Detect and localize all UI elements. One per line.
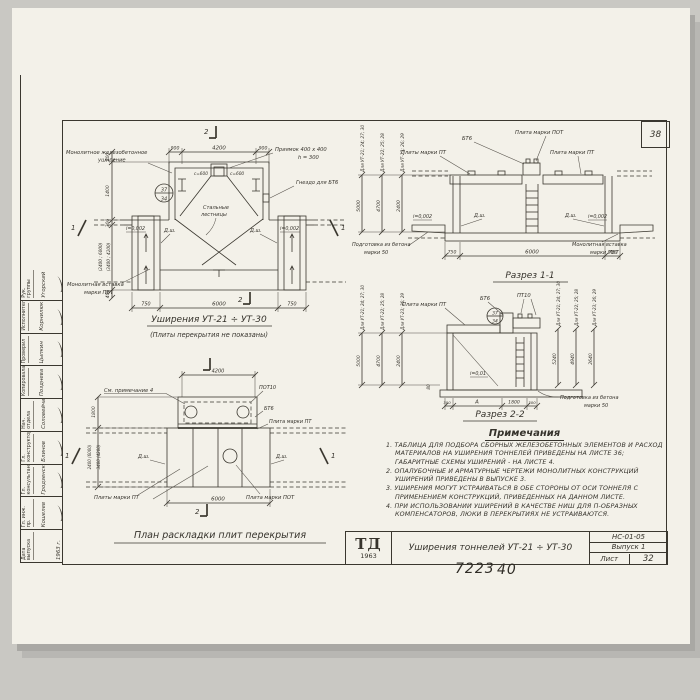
stamp-row: Рук. группы Угорский: [21, 268, 63, 301]
svg-text:4940: 4940: [570, 353, 576, 365]
issue-number: Выпуск 1: [590, 543, 667, 554]
logo-year: 1963: [360, 553, 377, 560]
svg-text:900: 900: [171, 146, 180, 152]
svg-text:1800: 1800: [508, 400, 520, 406]
hand-number-right: 40: [497, 562, 517, 578]
drawing-title: Уширения тоннелей УТ-21 ÷ УТ-30: [392, 532, 589, 564]
section-1-1: Для УТ-21; 24; 27; 30 Для УТ-22; 25; 28 …: [350, 118, 665, 290]
slab-band-plan: [86, 428, 348, 487]
hand-number-left: 7223: [455, 561, 495, 577]
view-title: Уширения УТ-21 ÷ УТ-30 (Плиты перекрытия…: [147, 315, 272, 339]
view-widening-elevation: 2 900 4200 900 с=600 с=600: [64, 122, 358, 348]
svg-text:Для УТ-21; 24; 27; 30: Для УТ-21; 24; 27; 30: [360, 285, 365, 331]
svg-text:h = 300: h = 300: [298, 155, 320, 161]
svg-text:1400: 1400: [105, 185, 111, 197]
dim-bottom: 300 А 1800 300: [442, 398, 540, 410]
svg-text:34: 34: [492, 319, 498, 325]
note-item: 1. Таблица для подбора сборных железобет…: [386, 442, 663, 467]
stamp-row: Нач. отдела Соловейчик: [21, 399, 63, 432]
callouts-bottom: Плиты марки ПТ Плита марки ПОТ: [94, 465, 295, 501]
svg-text:300: 300: [105, 219, 111, 228]
section-title: Разрез 2-2: [463, 410, 537, 421]
stamp-row: Проверил Цыпкин: [21, 334, 63, 367]
svg-text:750: 750: [287, 302, 296, 308]
svg-text:1: 1: [341, 224, 345, 232]
svg-text:400: 400: [105, 290, 111, 299]
stamp-row: Копировала Позднева: [21, 366, 63, 399]
svg-text:1: 1: [331, 452, 335, 460]
signature-scribble: [53, 372, 63, 391]
svg-text:Д.ш.: Д.ш.: [163, 228, 176, 234]
svg-text:(3400 ; 4200): (3400 ; 4200): [106, 242, 111, 271]
height-dims-left: Для УТ-21; 24; 27; 30 Для УТ-22; 25; 28 …: [356, 125, 450, 235]
section-marker-1-left: 1: [65, 448, 80, 464]
callout-socket: Гнездо для БТ6: [270, 180, 339, 198]
svg-text:2400: 2400: [396, 200, 402, 212]
svg-text:Д.ш.: Д.ш.: [137, 454, 150, 460]
svg-text:4200: 4200: [212, 369, 225, 375]
svg-text:марки 50: марки 50: [364, 250, 388, 256]
note-item: 4. При использовании уширений в качестве…: [386, 503, 663, 520]
svg-text:750: 750: [448, 250, 457, 256]
svg-text:ПОТ10: ПОТ10: [259, 385, 276, 391]
logo-text: ТД: [355, 537, 382, 552]
svg-text:3400 (4200): 3400 (4200): [96, 444, 101, 469]
section-marker-1-right: 1: [330, 220, 345, 236]
side-stamp: Рук. группы Угорский Исполнитель Корнилю…: [20, 268, 62, 563]
svg-text:Монолитная вставка: Монолитная вставка: [67, 282, 124, 288]
logo-td: ТД 1963: [346, 532, 392, 564]
svg-text:с=600: с=600: [194, 171, 208, 177]
callout-insert: Монолитная вставка марки МВТ: [572, 234, 627, 256]
svg-text:См. примечание 4: См. примечание 4: [104, 388, 153, 394]
dim-bottom: 750 6000 750: [129, 292, 309, 312]
svg-text:750: 750: [609, 250, 618, 256]
note-item: 2. Опалубочные и арматурные чертежи моно…: [386, 468, 663, 485]
document-code: НС-01-05: [590, 532, 667, 543]
svg-text:(2400 ; 6000): (2400 ; 6000): [98, 242, 103, 271]
notes-block: Примечания 1. Таблица для подбора сборны…: [386, 428, 663, 521]
svg-text:2400: 2400: [396, 355, 402, 367]
svg-text:лестницы: лестницы: [200, 212, 227, 218]
plan-slab-layout: 4200 См. примечание 4 ПОТ10 БТ6 Плита ма…: [58, 352, 370, 557]
svg-text:300: 300: [443, 400, 451, 405]
svg-text:Для УТ-21; 24; 27; 30: Для УТ-21; 24; 27; 30: [360, 125, 366, 173]
svg-text:2: 2: [238, 296, 243, 304]
svg-text:4700: 4700: [376, 200, 382, 212]
section-marker-1-left: 1: [71, 220, 86, 236]
widening-plan: [178, 397, 257, 428]
signature-scribble: [53, 307, 63, 326]
svg-text:i=0,002: i=0,002: [413, 214, 432, 220]
svg-text:Для УТ-22; 25; 28: Для УТ-22; 25; 28: [380, 133, 386, 173]
section-2-2: Для УТ-21; 24; 27; 30 Для УТ-22; 25; 28 …: [350, 285, 665, 427]
title-block: ТД 1963 Уширения тоннелей УТ-21 ÷ УТ-30 …: [345, 531, 668, 565]
svg-text:Для УТ-23; 26; 29: Для УТ-23; 26; 29: [400, 293, 405, 331]
svg-text:Плита марки ПТ: Плита марки ПТ: [269, 419, 312, 425]
svg-text:4200: 4200: [212, 146, 226, 152]
plan-title: План раскладки плит перекрытия: [114, 530, 326, 543]
svg-text:1800: 1800: [91, 406, 97, 418]
section-title: Разрез 1-1: [493, 271, 568, 282]
svg-text:Д.ш.: Д.ш.: [473, 213, 486, 219]
stamp-row: Дата выпуска 1963 г.: [21, 530, 63, 563]
stamp-row: Гл. конструктор Блинов: [21, 432, 63, 465]
svg-text:марки 50: марки 50: [584, 403, 608, 409]
stamp-row: Исполнитель Корнилюк: [21, 301, 63, 334]
joint-and-slope-labels: Д.ш. Д.ш. i=0,002 i=0,002: [413, 213, 607, 226]
svg-text:Плиты марки ПТ: Плиты марки ПТ: [94, 495, 140, 501]
svg-text:Для УТ-22; 25; 28: Для УТ-22; 25; 28: [380, 293, 385, 331]
section-marker-2-top: 2: [204, 126, 216, 138]
svg-text:Д.ш.: Д.ш.: [249, 228, 262, 234]
svg-text:37: 37: [492, 311, 498, 317]
stamp-row: Гл. инж. пр. Кошелев: [21, 497, 63, 530]
svg-text:i=0,002: i=0,002: [588, 214, 607, 220]
signature-scribble: [53, 274, 63, 293]
svg-text:Уширения УТ-21 ÷ УТ-30: Уширения УТ-21 ÷ УТ-30: [151, 315, 267, 325]
signature-scribble: [53, 471, 63, 490]
svg-text:План раскладки плит перекрытия: План раскладки плит перекрытия: [134, 530, 306, 541]
svg-text:БТ6: БТ6: [264, 406, 274, 412]
sheet-number: 32: [629, 554, 668, 564]
svg-text:6000: 6000: [525, 250, 539, 256]
svg-text:Гнездо для БТ6: Гнездо для БТ6: [296, 180, 339, 186]
steel-ladders-lines: [175, 176, 263, 277]
section-marker-1-right: 1: [320, 448, 335, 464]
dim-top: 900 4200 900: [166, 146, 272, 165]
svg-text:БТ6: БТ6: [480, 296, 491, 302]
svg-text:900: 900: [259, 146, 268, 152]
svg-text:ПТ10: ПТ10: [517, 293, 531, 299]
signature-scribble: [53, 405, 63, 424]
svg-text:5240: 5240: [552, 353, 558, 365]
svg-text:Плита марки ПОТ: Плита марки ПОТ: [246, 495, 295, 501]
svg-text:80: 80: [426, 384, 431, 390]
svg-text:Для УТ-23; 26; 29: Для УТ-23; 26; 29: [592, 289, 597, 327]
svg-text:1: 1: [65, 452, 69, 460]
section-marker-2-bottom: 2: [238, 292, 250, 304]
svg-text:(Плиты перекрытия не показаны): (Плиты перекрытия не показаны): [150, 331, 268, 339]
svg-text:i=0,002: i=0,002: [280, 226, 299, 232]
sheet-row: Лист 32: [590, 553, 667, 564]
svg-text:Монолитная вставка: Монолитная вставка: [572, 242, 627, 248]
svg-text:Разрез 1-1: Разрез 1-1: [505, 271, 554, 281]
stamp-row: Гл. консультант Гродзенский: [21, 465, 63, 498]
signature-scribble: [53, 340, 63, 359]
svg-text:2: 2: [195, 508, 200, 516]
callout-steel-ladders: Стальные лестницы: [200, 205, 229, 235]
note-item: 3. Уширения могут устраиваться в обе сто…: [386, 485, 663, 502]
tunnel-cross-section: [408, 159, 655, 241]
joint-and-slope-labels: Д.ш. Д.ш. i=0,002 i=0,002: [126, 226, 300, 243]
svg-text:БТ6: БТ6: [462, 136, 473, 142]
svg-text:Приямок 400 x 400: Приямок 400 x 400: [275, 147, 327, 153]
sheet-label: Лист: [590, 555, 629, 563]
signature-scribble: [53, 504, 63, 523]
svg-text:i=0,002: i=0,002: [126, 226, 145, 232]
notes-title: Примечания: [386, 428, 663, 439]
svg-text:Плиты марки ПТ: Плиты марки ПТ: [401, 150, 447, 156]
svg-text:6000: 6000: [211, 497, 225, 503]
svg-text:37: 37: [161, 188, 168, 194]
svg-text:34: 34: [161, 197, 167, 203]
svg-text:Подготовка из бетона: Подготовка из бетона: [352, 242, 411, 248]
node-mark-circle: 37 34: [155, 184, 173, 203]
callouts: Плита марки ПТ БТ6 ПТ10 Подготовка из бе…: [402, 293, 619, 409]
svg-text:2400 (6000): 2400 (6000): [87, 444, 92, 469]
svg-text:1: 1: [71, 224, 75, 232]
svg-text:А: А: [474, 400, 479, 406]
svg-text:6000: 6000: [212, 302, 226, 308]
svg-text:Д.ш.: Д.ш.: [564, 213, 577, 219]
svg-text:Плита марки ПТ: Плита марки ПТ: [402, 302, 447, 308]
height-dims-right: Для УТ-21; 24; 27; 30 Для УТ-22; 25; 28 …: [552, 281, 597, 388]
signature-scribble: [53, 438, 63, 457]
callout-prep: Подготовка из бетона марки 50: [352, 232, 428, 256]
callouts-top: Плиты марки ПТ БТ6 Плита марки ПОТ Плита…: [401, 130, 595, 174]
svg-text:750: 750: [141, 302, 150, 308]
svg-text:4700: 4700: [376, 355, 382, 367]
svg-text:Подготовка из бетона: Подготовка из бетона: [560, 395, 619, 401]
svg-text:5000: 5000: [356, 200, 362, 212]
svg-text:Плита марки ПТ: Плита марки ПТ: [550, 150, 595, 156]
svg-text:Для УТ-22; 25; 28: Для УТ-22; 25; 28: [574, 289, 579, 327]
callout-pit: Приямок 400 x 400 h = 300: [229, 147, 327, 168]
svg-text:с=600: с=600: [230, 171, 244, 177]
svg-text:2: 2: [204, 128, 209, 136]
callout-widening: Монолитное железобетонное уширение: [66, 150, 172, 173]
dim-top: 4200: [179, 369, 258, 398]
section-marker-2-bottom: 2: [195, 504, 207, 516]
svg-text:Разрез 2-2: Разрез 2-2: [475, 410, 525, 420]
svg-text:Для УТ-21; 24; 27; 30: Для УТ-21; 24; 27; 30: [556, 281, 561, 327]
svg-text:300: 300: [528, 400, 536, 405]
svg-text:2640: 2640: [588, 353, 594, 365]
svg-text:Стальные: Стальные: [203, 205, 229, 211]
section-marker-2-top: [203, 358, 210, 370]
node-mark-circle: 37 34: [487, 308, 503, 325]
svg-text:Плита марки ПОТ: Плита марки ПОТ: [515, 130, 564, 136]
svg-text:Д.ш.: Д.ш.: [275, 454, 288, 460]
dim-left-chain: 200 1400 300 (2400 ; 6000) (3400 ; 4200)…: [98, 149, 169, 301]
svg-text:200: 200: [105, 153, 111, 162]
dim-left-chain: 1800 2400 (6000) 3400 (4200): [87, 394, 178, 490]
svg-text:i=0,01: i=0,01: [470, 371, 486, 377]
